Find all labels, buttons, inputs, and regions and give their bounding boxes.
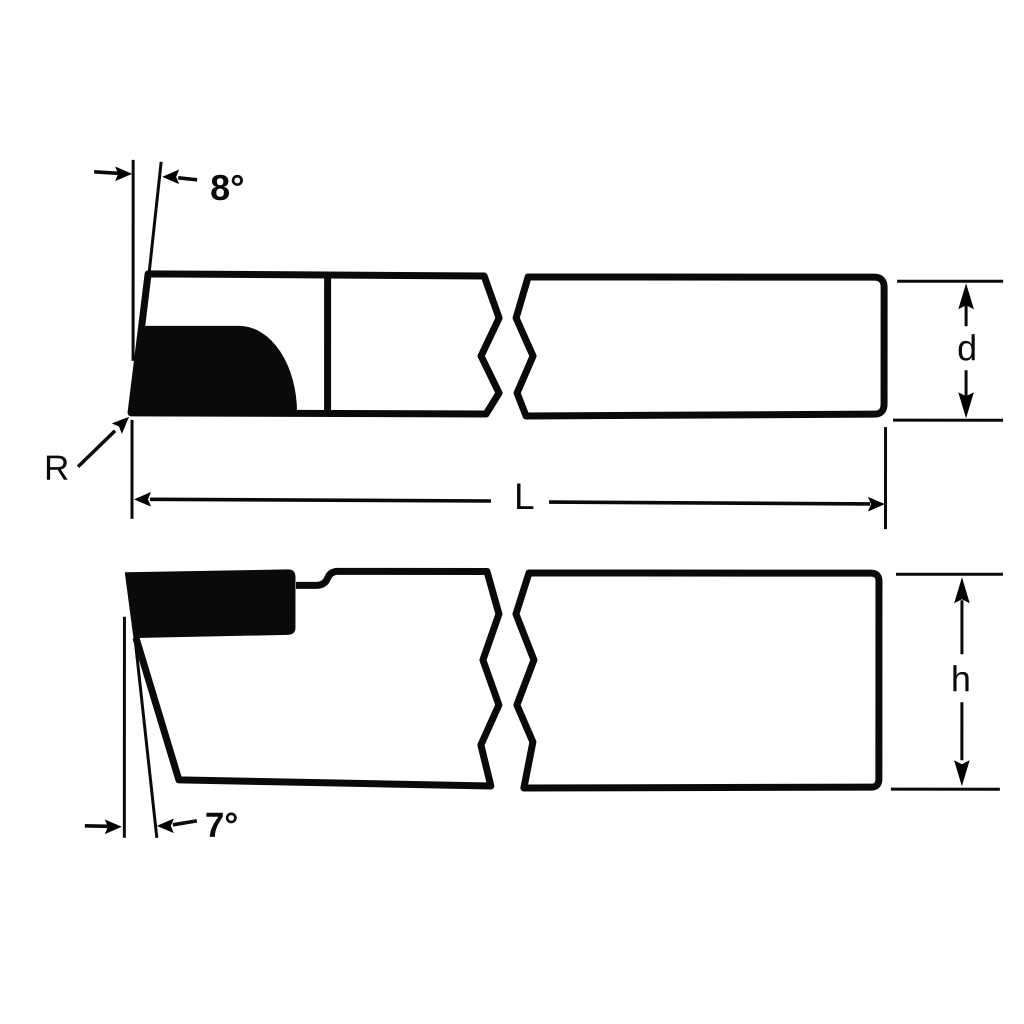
svg-text:h: h [951, 658, 971, 699]
svg-text:d: d [957, 327, 977, 368]
svg-text:L: L [514, 476, 535, 517]
svg-text:7°: 7° [205, 806, 238, 845]
svg-text:8°: 8° [210, 167, 244, 208]
svg-text:R: R [44, 449, 69, 488]
